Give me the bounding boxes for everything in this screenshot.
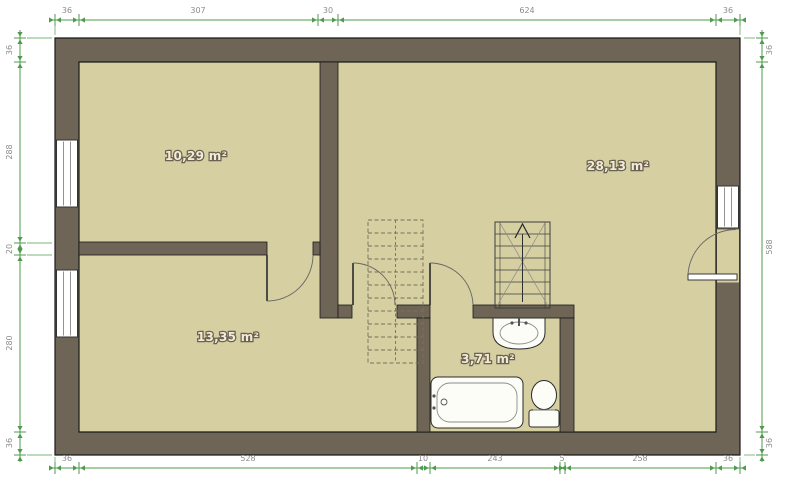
- sink-tap-icon: [510, 321, 513, 324]
- dimension-label: 36: [765, 45, 774, 55]
- dimension-label: 5: [559, 454, 564, 463]
- window-right: [718, 186, 739, 228]
- dimension-label: 528: [240, 454, 255, 463]
- room-area-label: 13,35 m²: [197, 330, 259, 344]
- dimension-line-left: 36 288 20 280 36: [5, 30, 52, 462]
- floor-plan-page: 10,29 m² 28,13 m² 13,35 m² 3,71 m² 36 30…: [0, 0, 800, 494]
- door-right-leaf: [688, 274, 737, 280]
- dimension-label: 243: [487, 454, 502, 463]
- wall-hall-stub-left: [338, 305, 352, 318]
- dimension-line-top: 36 307 30 624 36: [49, 6, 746, 35]
- wall-bathroom-right: [560, 318, 574, 432]
- room-area-label: 28,13 m²: [587, 159, 649, 173]
- dimension-label: 36: [62, 6, 72, 15]
- dimension-label: 307: [190, 6, 205, 15]
- dimension-label: 36: [723, 6, 733, 15]
- dimension-label: 288: [5, 144, 14, 159]
- dimension-label: 36: [5, 438, 14, 448]
- dimension-label: 624: [519, 6, 534, 15]
- dimension-label: 588: [765, 239, 774, 254]
- wall-bathroom-left: [417, 318, 430, 432]
- window-left-upper: [57, 140, 78, 207]
- dimension-label: 36: [723, 454, 733, 463]
- dimension-line-right: 36 588 36: [744, 30, 774, 462]
- dimension-label: 20: [5, 244, 14, 254]
- sink: [493, 318, 545, 349]
- wall-bathroom-top: [473, 305, 574, 318]
- window-left-lower: [57, 270, 78, 337]
- floor-plan-drawing: 10,29 m² 28,13 m² 13,35 m² 3,71 m² 36 30…: [0, 0, 800, 494]
- toilet: [529, 381, 559, 428]
- wall-horizontal-left-b: [313, 242, 320, 255]
- dimension-line-bottom: 36 528 10 243 5 258 36: [49, 454, 746, 474]
- dimension-label: 36: [765, 438, 774, 448]
- dimension-label: 258: [632, 454, 647, 463]
- bathtub: [431, 377, 523, 428]
- dimension-label: 36: [5, 45, 14, 55]
- room-area-label: 3,71 m²: [461, 352, 515, 366]
- dimension-label: 30: [323, 6, 333, 15]
- wall-vertical-main: [320, 62, 338, 318]
- wall-horizontal-left-a: [79, 242, 267, 255]
- room-area-label: 10,29 m²: [165, 149, 227, 163]
- dimension-label: 280: [5, 335, 14, 350]
- dimension-label: 36: [62, 454, 72, 463]
- sink-tap-icon: [524, 321, 527, 324]
- dimension-label: 10: [418, 454, 428, 463]
- wall-hall-stub-mid: [397, 305, 430, 318]
- bathtub-tap-icon: [432, 406, 435, 409]
- bathtub-tap-icon: [432, 394, 435, 397]
